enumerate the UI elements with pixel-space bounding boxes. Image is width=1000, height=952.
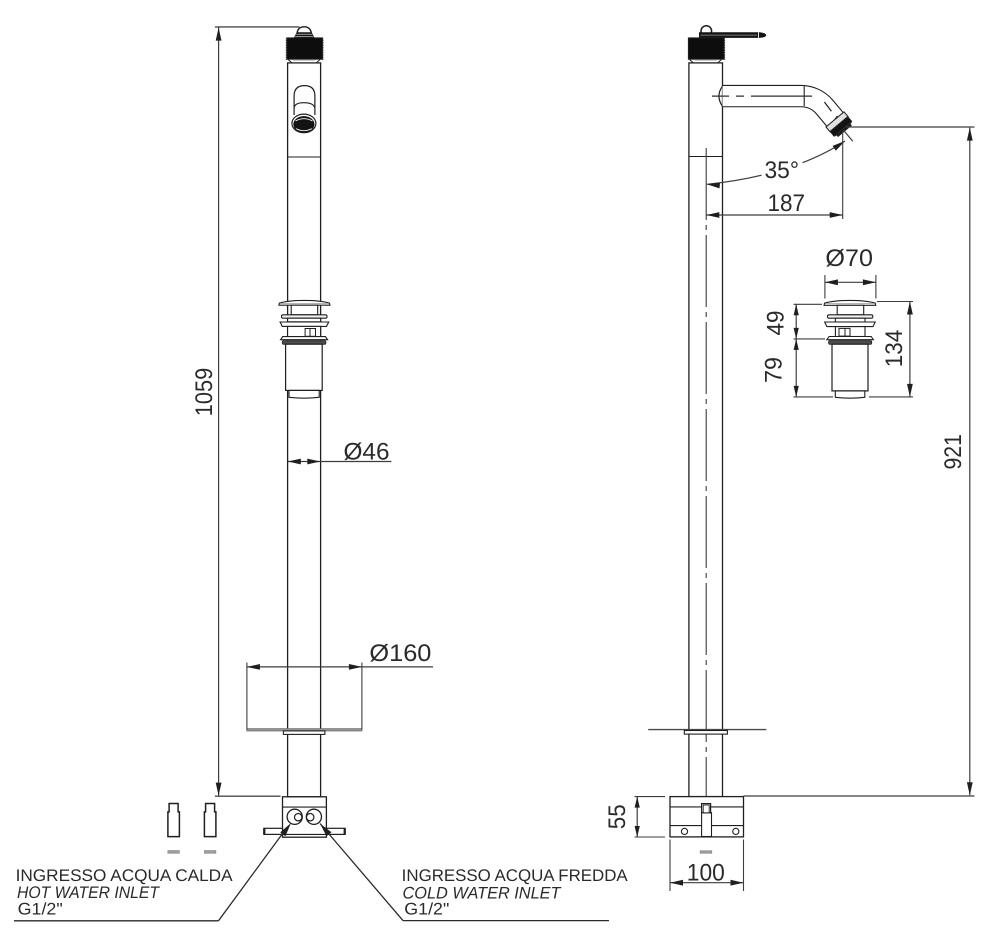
svg-text:55: 55 — [604, 804, 631, 829]
svg-text:187: 187 — [768, 190, 806, 217]
svg-text:49: 49 — [763, 311, 790, 336]
svg-text:G1/2": G1/2" — [404, 900, 449, 919]
svg-text:1059: 1059 — [191, 368, 218, 417]
svg-text:921: 921 — [940, 434, 967, 470]
svg-text:35°: 35° — [765, 157, 800, 184]
svg-text:Ø160: Ø160 — [369, 640, 431, 667]
svg-text:INGRESSO ACQUA FREDDA: INGRESSO ACQUA FREDDA — [402, 866, 629, 885]
svg-text:100: 100 — [687, 860, 725, 887]
svg-text:Ø46: Ø46 — [344, 439, 390, 466]
svg-text:134: 134 — [881, 330, 908, 368]
svg-text:G1/2": G1/2" — [18, 899, 63, 918]
svg-text:Ø70: Ø70 — [825, 245, 873, 272]
svg-text:79: 79 — [761, 357, 788, 383]
